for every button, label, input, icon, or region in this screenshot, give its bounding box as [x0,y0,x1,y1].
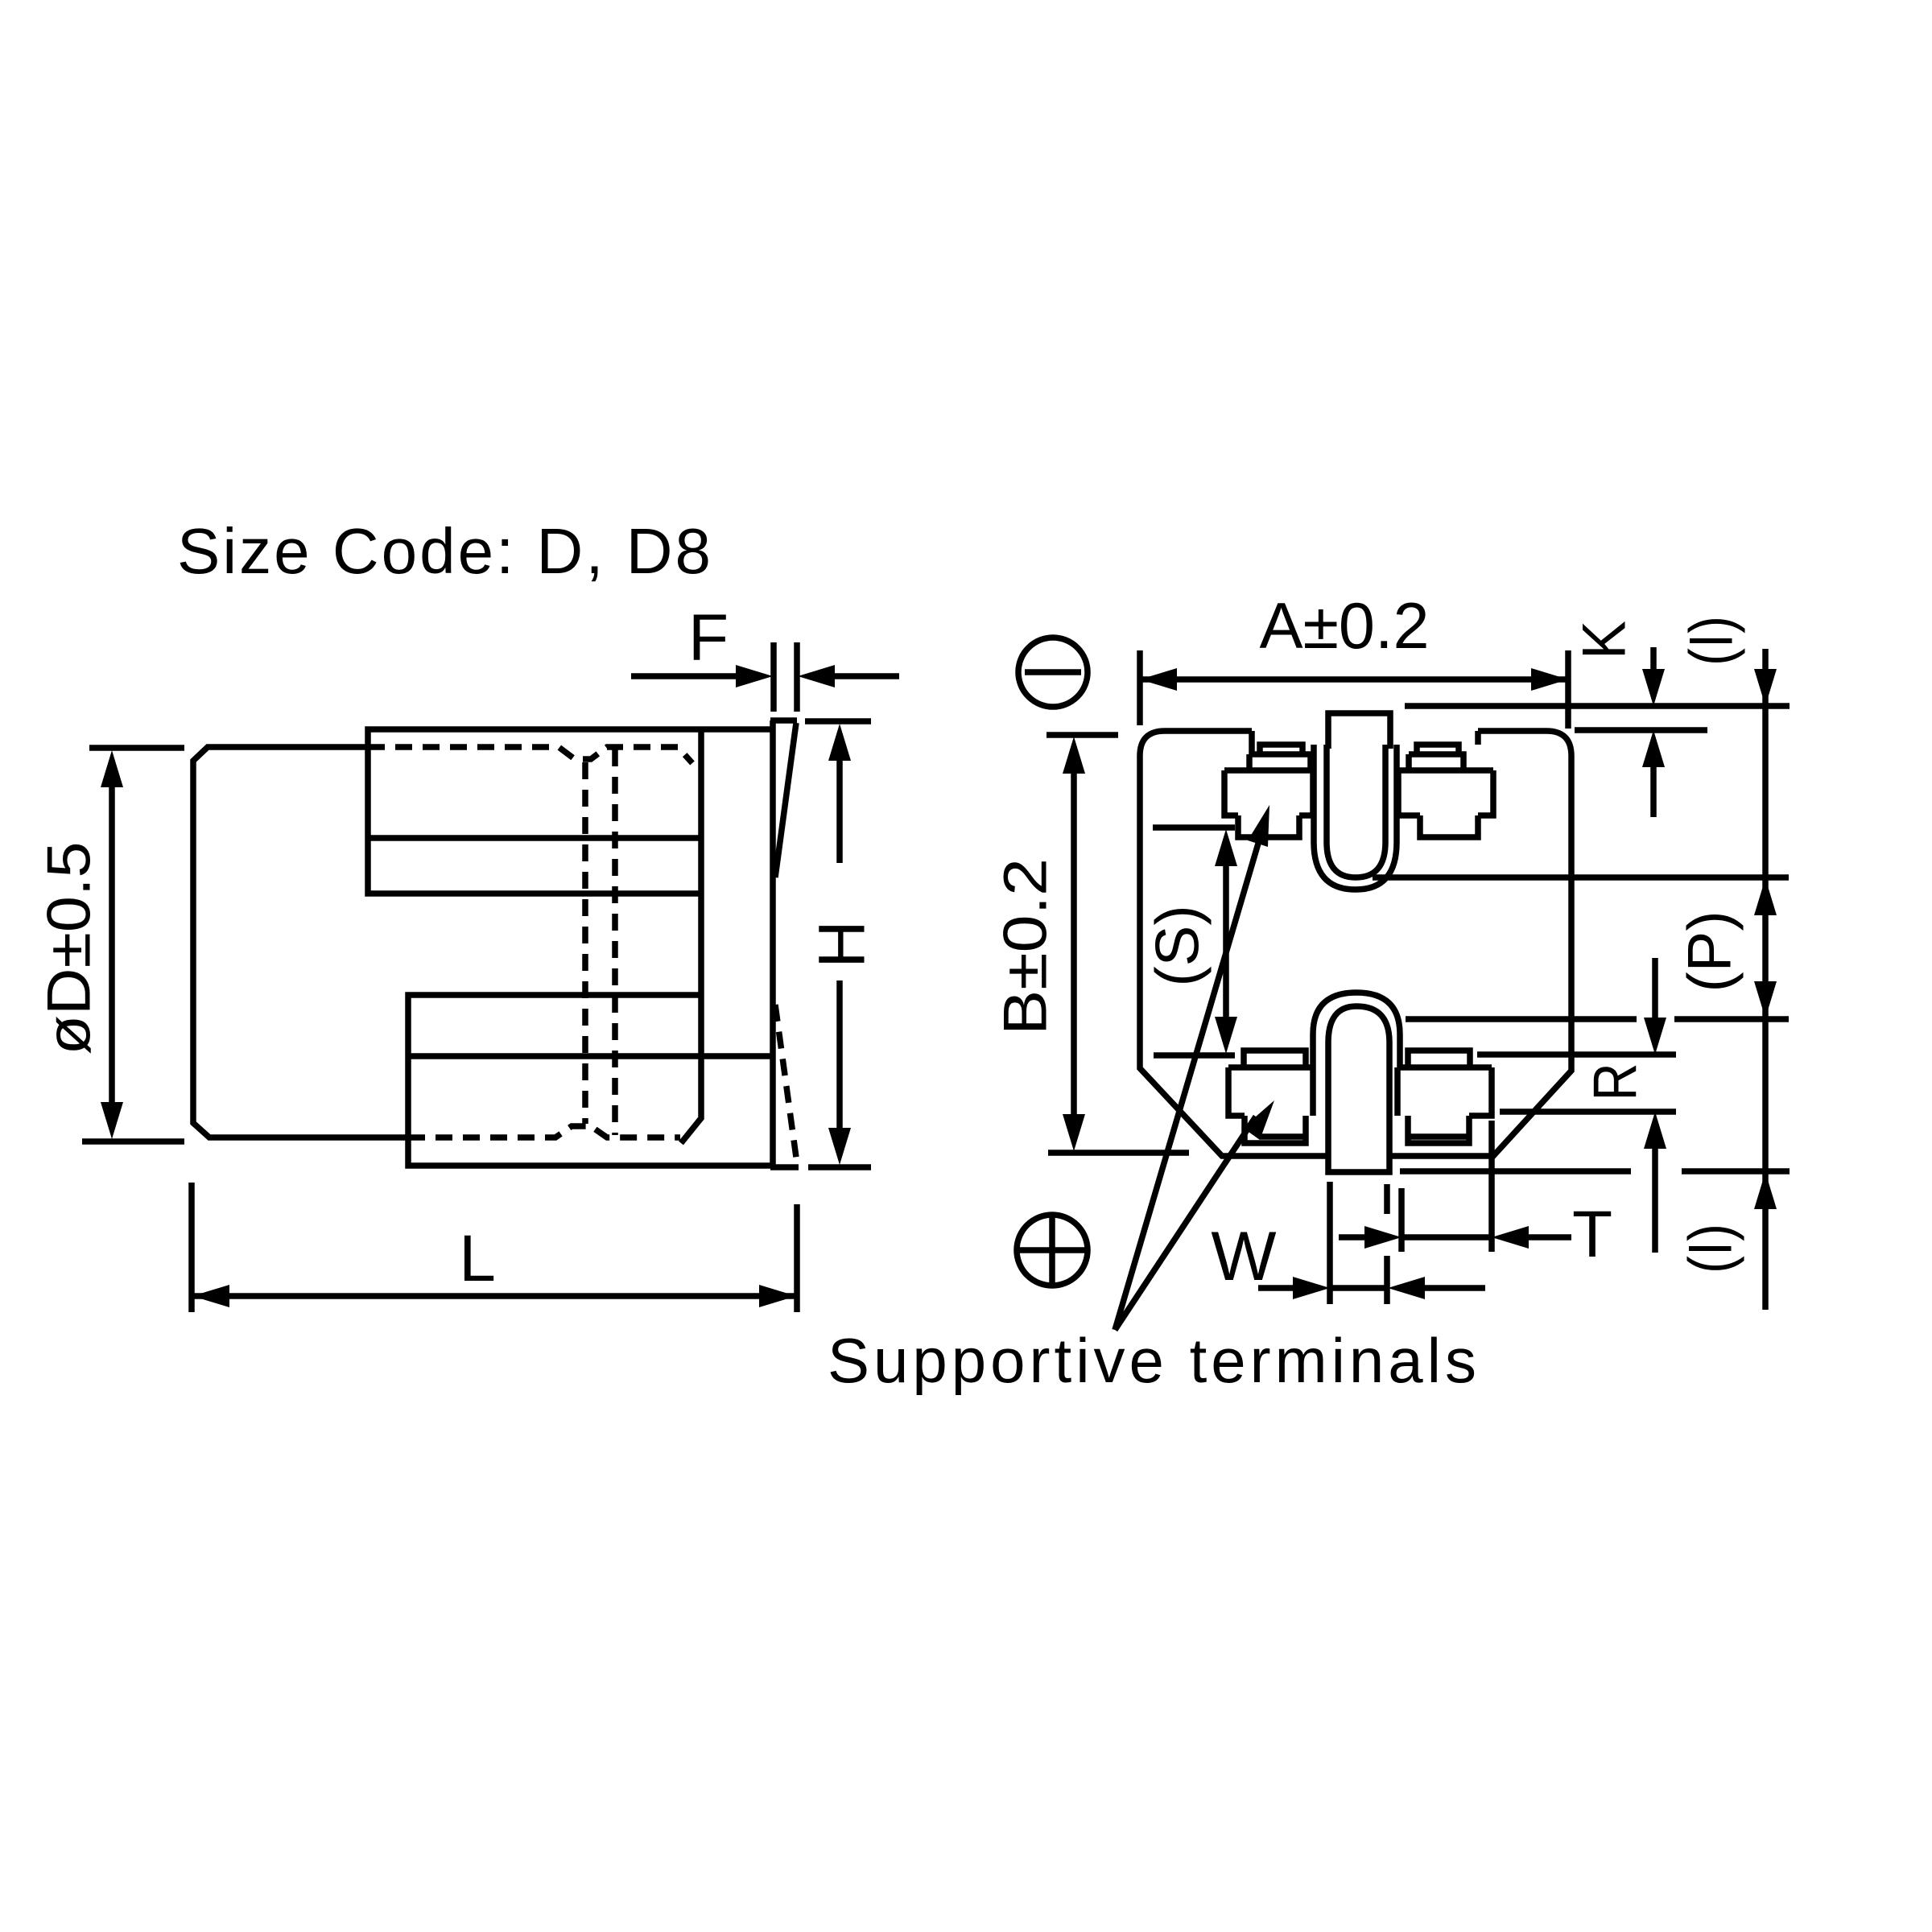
svg-text:W: W [1211,1218,1276,1295]
svg-text:R: R [1582,1063,1650,1101]
svg-text:(S): (S) [1144,905,1212,986]
svg-text:T: T [1572,1198,1612,1271]
svg-text:H: H [806,920,879,968]
svg-text:K: K [1571,621,1639,659]
svg-text:A±0.2: A±0.2 [1259,590,1429,663]
svg-text:L: L [459,1222,496,1295]
svg-text:F: F [688,601,729,675]
svg-text:(P): (P) [1676,910,1744,992]
svg-text:Size Code: D, D8: Size Code: D, D8 [177,515,713,587]
svg-text:øD±0.5: øD±0.5 [35,842,104,1055]
svg-text:(I): (I) [1678,616,1746,666]
svg-text:(I): (I) [1677,1224,1745,1274]
svg-text:Supportive terminals: Supportive terminals [828,1325,1480,1396]
svg-text:B±0.2: B±0.2 [992,858,1060,1035]
